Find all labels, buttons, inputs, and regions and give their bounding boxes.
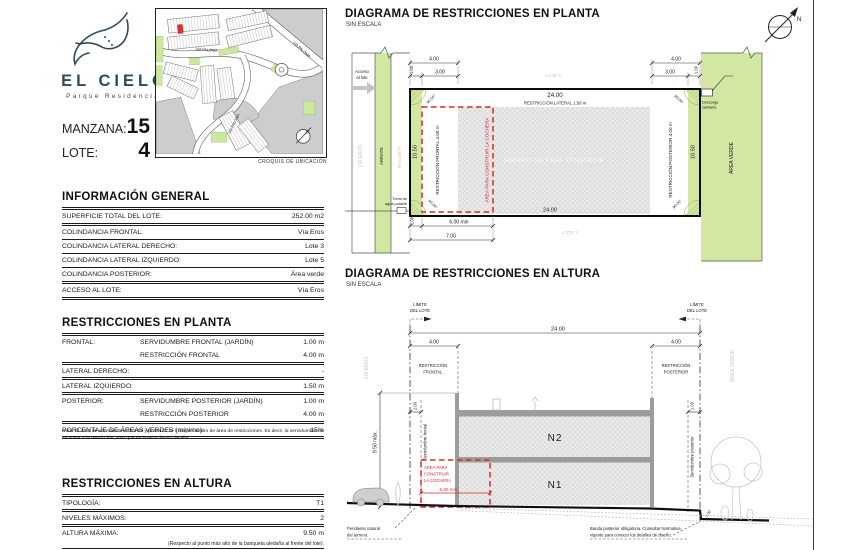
plan-diagram-title: DIAGRAMA DE RESTRICCIONES EN PLANTA <box>345 8 600 20</box>
dove-logo-icon <box>70 10 160 72</box>
garage-area-label: ÁREA PARA CONSTRUIR LA COCHERA <box>484 117 490 203</box>
front-easement: 1.00 Servidumbre frontal <box>408 400 428 507</box>
rear-band-label: vigente para conocer los detalles de dis… <box>590 533 672 538</box>
limit-label: DEL LOTE <box>687 308 707 313</box>
table-row: TIPOLOGÍA:T1 <box>62 497 324 512</box>
elevation-diagram: LÍMITE DEL LOTE LÍMITE DEL LOTE 24.00 4.… <box>345 292 815 550</box>
tree-icon <box>710 437 762 521</box>
plan-diagram: Acceso al lote VÍA EROS ARRIATE BANQUETA… <box>345 36 815 270</box>
north-letter: N <box>797 16 801 23</box>
limit-arrow-icon <box>679 317 687 322</box>
roof-vent-icon <box>493 399 500 410</box>
table-row: ACCESO AL LOTE:Vía Eros <box>62 284 324 300</box>
row-sublabel: RESTRICCIÓN FRONTAL <box>140 352 303 359</box>
neighbor-lot-label: LOTE 5 <box>545 73 561 78</box>
sanitary-discharge-label: Descarga <box>702 101 719 105</box>
row-value: Lote 3 <box>305 243 324 250</box>
dim-label: 7.00 <box>446 234 456 240</box>
rear-band-note: Banda posterior obligatoria. Consultar N… <box>590 522 699 539</box>
table-row: COLINDANCIA LATERAL DERECHO:Lote 3 <box>62 240 324 254</box>
row-value: 1.00 m <box>303 339 324 346</box>
row-label: LATERAL DERECHO: <box>62 368 140 375</box>
table-row: POSTERIOR:SERVIDUMBRE POSTERIOR (JARDÍN)… <box>62 395 324 408</box>
terrain-note-label: del terreno. <box>347 533 368 538</box>
max-height-label: 9.50 máx. <box>373 431 379 453</box>
highlighted-lot-marker <box>177 24 183 33</box>
table-row: LATERAL DERECHO:- <box>62 365 324 380</box>
building-section: N2 N1 <box>455 393 654 507</box>
rear-restriction-label: RESTRICCIÓN POSTERIOR 4.00 m <box>667 122 673 197</box>
rear-restriction-label: POSTERIOR <box>664 370 689 375</box>
lateral-restriction-label: RESTRICCIÓN LATERAL 1.50 m <box>524 101 587 106</box>
table-row: COLINDANCIA FRONTAL:Vía Eros <box>62 226 324 240</box>
neighbor-lot-label: LOTE 3 <box>562 230 578 235</box>
street-name-label: VÍA EROS <box>357 144 364 168</box>
street-zone: Acceso al lote VÍA EROS ARRIATE BANQUETA… <box>345 47 410 253</box>
roof-slab <box>455 410 654 417</box>
row-value: Vía Eros <box>298 287 324 294</box>
table-row: LATERAL IZQUIERDO:1.50 m <box>62 380 324 395</box>
row-label: FRONTAL: <box>62 339 140 346</box>
location-map: VÍA PALOMA VÍA PALOMA VÍA PALOMA N <box>155 8 327 158</box>
access-label: al lote <box>356 75 368 80</box>
elevation-diagram-title: DIAGRAMA DE RESTRICCIONES EN ALTURA <box>345 268 600 280</box>
green-area: ÁREA VERDE Descarga sanitaria <box>701 47 762 261</box>
row-label: COLINDANCIA POSTERIOR: <box>62 271 152 278</box>
dim-label: 6.00 min <box>449 220 468 226</box>
level-label-n2: N2 <box>548 433 563 444</box>
green-area-label: ÁREA VERDE <box>728 141 735 174</box>
sanitary-discharge-label: sanitaria <box>702 106 717 110</box>
row-value: - <box>322 368 324 375</box>
row-sublabel: RESTRICCIÓN POSTERIOR <box>140 411 303 418</box>
elevation-diagram-scale: SIN ESCALA <box>346 282 381 288</box>
table-row: RESTRICCIÓN POSTERIOR4.00 m <box>62 408 324 424</box>
location-map-drawing: VÍA PALOMA VÍA PALOMA VÍA PALOMA N <box>156 9 323 154</box>
lot-plan: 24.00 RESTRICCIÓN LATERAL 1.50 m RESTRIC… <box>410 89 700 216</box>
row-value: Vía Eros <box>298 229 324 236</box>
row-value: Lote 5 <box>305 257 324 264</box>
table-row: ALTURA MÁXIMA:9.50 m <box>62 527 324 539</box>
row-value: 1.50 m <box>303 383 324 390</box>
dim-label: 1.00 <box>704 510 712 518</box>
access-label: Acceso <box>355 69 369 74</box>
row-label: ACCESO AL LOTE: <box>62 287 122 294</box>
dim-label: 1.00 <box>690 401 695 410</box>
garage-area-label: CONSTRUIR <box>424 472 449 477</box>
dim-label: 24.00 <box>551 327 565 333</box>
cypress-tree-icon <box>396 482 401 505</box>
dim-label: 24.00 <box>543 208 557 214</box>
north-letter: N <box>306 129 309 134</box>
table-row: COLINDANCIA POSTERIOR:Área verde <box>62 268 324 284</box>
ground: 1.00 <box>347 503 813 526</box>
dim-label: 10.50 <box>691 145 697 159</box>
info-general-title: INFORMACIÓN GENERAL <box>62 191 210 203</box>
dim-label: 3.00 <box>435 70 445 76</box>
row-label: POSTERIOR: <box>62 398 140 405</box>
green-area-label: ÁREA VERDE <box>729 349 736 382</box>
plan-diagram-scale: SIN ESCALA <box>346 22 381 28</box>
table-row: RESTRICCIÓN FRONTAL4.00 m <box>62 349 324 365</box>
buildable-surface-label: SUPERFICIE PARA CONSTRUIR <box>504 158 604 164</box>
row-label: COLINDANCIA LATERAL DERECHO: <box>62 243 177 250</box>
terrain-slope-line <box>458 511 813 527</box>
sidewalk-label: BANQUETA <box>397 145 402 168</box>
water-intake-label: Toma de <box>392 197 407 201</box>
row-label: COLINDANCIA FRONTAL: <box>62 229 143 236</box>
row-label: TIPOLOGÍA: <box>62 500 101 507</box>
sanitary-discharge-icon <box>702 89 713 96</box>
row-value: 4.00 m <box>303 411 324 418</box>
table-row: NIVELES MÁXIMOS:2 <box>62 512 324 527</box>
front-easement-label: Servidumbre frontal <box>423 424 428 461</box>
row-value: 2 <box>320 515 324 522</box>
sheet: EL CIELO Parque Residencial <box>0 0 850 550</box>
row-label: COLINDANCIA LATERAL IZQUIERDO: <box>62 257 181 264</box>
altura-footnote: (Respecto al punto más alto de la banque… <box>62 539 324 550</box>
garage-area-label: ÁREA PARA <box>424 465 448 470</box>
map-caption: CROQUIS DE UBICACIÓN <box>155 159 327 165</box>
roof-antenna-icon <box>532 397 538 410</box>
manzana-value: 15 <box>112 115 150 139</box>
row-label: LATERAL IZQUIERDO: <box>62 383 140 390</box>
limit-label: LÍMITE <box>413 302 427 307</box>
dim-label: 10.50 <box>413 145 419 159</box>
row-value: T1 <box>316 500 324 507</box>
water-intake-icon <box>397 208 406 214</box>
dim-label: 4.00 <box>671 57 681 63</box>
dim-label: 3.00 <box>665 70 675 76</box>
lote-value: 4 <box>112 139 150 163</box>
limit-label: LÍMITE <box>690 302 704 307</box>
row-label: SUPERFICIE TOTAL DEL LOTE: <box>62 213 162 220</box>
dim-label: 4.00 <box>429 340 439 346</box>
map-roundabout-center <box>279 67 284 72</box>
rear-easement: 1.00 Servidumbre posterior <box>686 400 702 512</box>
planta-title: RESTRICCIONES EN PLANTA <box>62 317 232 329</box>
row-sublabel: SERVIDUMBRE POSTERIOR (JARDÍN) <box>140 398 303 405</box>
water-intake-label: agua potable <box>385 202 407 206</box>
arriate-label: ARRIATE <box>379 147 384 165</box>
front-restriction-label: RESTRICCIÓN <box>419 363 448 368</box>
dim-label: 1.00 <box>410 216 415 225</box>
row-value: Área verde <box>291 271 324 278</box>
row-value: 252.00 m2 <box>292 213 324 220</box>
rear-easement-label: Servidumbre posterior <box>690 436 695 478</box>
dim-label: 4.00 <box>671 340 681 346</box>
table-row: COLINDANCIA LATERAL IZQUIERDO:Lote 5 <box>62 254 324 268</box>
front-restriction-label: FRONTAL <box>423 370 443 375</box>
terrain-slope-line <box>458 508 813 519</box>
access-arrow-icon <box>353 82 376 94</box>
row-value: 1.00 m <box>303 398 324 405</box>
planta-note: Nota: El área de servidumbres frontal y … <box>62 429 324 442</box>
level-label-n1: N1 <box>548 480 563 491</box>
dim-label: 1.00 <box>413 401 418 410</box>
altura-table: TIPOLOGÍA:T1 NIVELES MÁXIMOS:2 ALTURA MÁ… <box>62 494 324 550</box>
dim-label: 24.00 <box>547 92 563 99</box>
garage-area-label: LA COCHERA <box>424 478 451 483</box>
rear-restriction-label: RESTRICCIÓN <box>662 363 691 368</box>
dim-label: 4.00 <box>429 57 439 63</box>
rear-band-label: Banda posterior obligatoria. Consultar N… <box>590 526 681 531</box>
table-row: SUPERFICIE TOTAL DEL LOTE:252.00 m2 <box>62 210 324 226</box>
terrain-note-label: Pendiente natural <box>347 526 380 531</box>
row-value: 9.50 m <box>303 530 324 537</box>
row-sublabel: SERVIDUMBRE FRONTAL (JARDÍN) <box>140 339 303 346</box>
altura-title: RESTRICCIONES EN ALTURA <box>62 478 232 490</box>
row-label: ALTURA MÁXIMA: <box>62 530 119 537</box>
limit-label: DEL LOTE <box>410 308 430 313</box>
table-row: FRONTAL:SERVIDUMBRE FRONTAL (JARDÍN)1.00… <box>62 336 324 349</box>
dim-label: 1.00 <box>694 65 699 74</box>
limit-arrow-icon <box>424 317 432 322</box>
row-label: NIVELES MÁXIMOS: <box>62 515 127 522</box>
info-general-table: SUPERFICIE TOTAL DEL LOTE:252.00 m2 COLI… <box>62 207 324 300</box>
terrain-note: Pendiente natural del terreno. <box>347 508 415 539</box>
dim-label: 6.00 min. <box>440 487 459 492</box>
dim-label: 1.00 <box>409 65 414 74</box>
front-restriction-label: RESTRICCIÓN FRONTAL 4.00 m <box>434 125 440 194</box>
rear-wall <box>650 398 654 507</box>
row-value: 4.00 m <box>303 352 324 359</box>
street-name-label: VÍA EROS <box>363 356 370 380</box>
planta-table: FRONTAL:SERVIDUMBRE FRONTAL (JARDÍN)1.00… <box>62 333 324 439</box>
